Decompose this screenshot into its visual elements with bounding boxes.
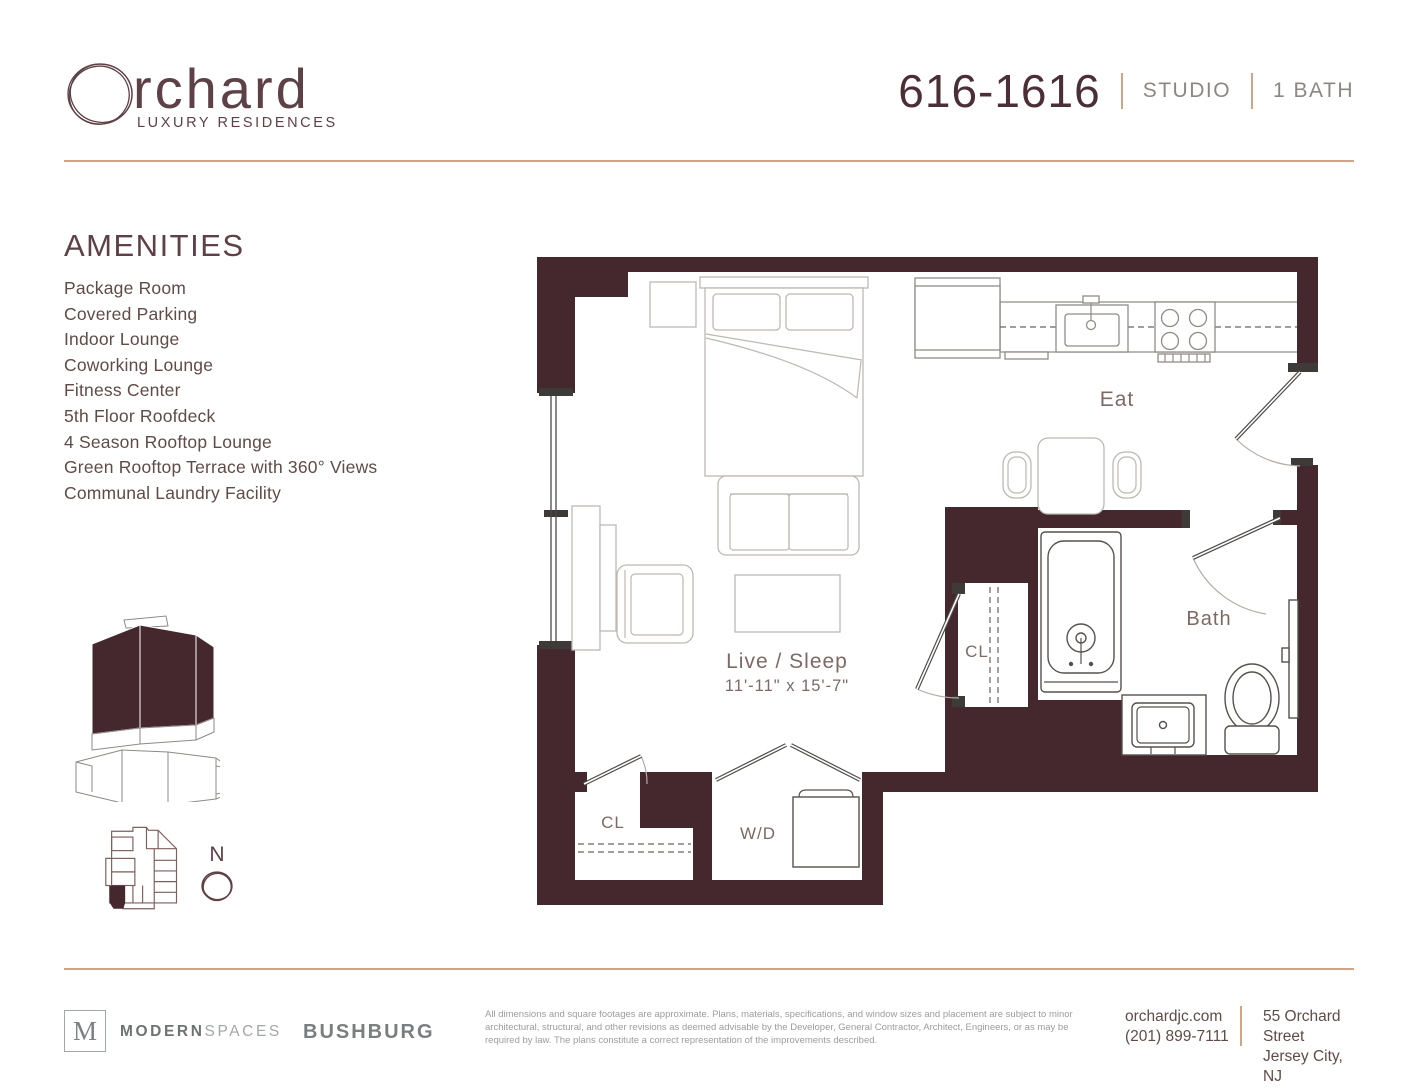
unit-header: 616-1616 STUDIO 1 BATH	[898, 64, 1354, 118]
amenities-list: Package Room Covered Parking Indoor Loun…	[64, 276, 444, 506]
phone: (201) 899-7111	[1125, 1027, 1229, 1047]
kitchen-counter	[1000, 302, 1297, 359]
bathroom-door	[1193, 518, 1280, 614]
unit-layout: STUDIO	[1143, 79, 1231, 103]
amenity-item: 5th Floor Roofdeck	[64, 404, 444, 430]
brand-tagline: LUXURY RESIDENCES	[137, 115, 338, 131]
armchair	[617, 565, 693, 643]
amenities-title: AMENITIES	[64, 228, 245, 264]
closet-lower-door	[584, 756, 647, 784]
nightstand	[650, 282, 696, 327]
closet-lower-rod	[578, 844, 691, 852]
amenity-item: Indoor Lounge	[64, 327, 444, 353]
modern-spaces-bold: MODERN	[120, 1023, 205, 1040]
stove	[1155, 302, 1215, 362]
address-line1: 55 Orchard Street	[1263, 1007, 1354, 1047]
brand-wordmark: rchard	[133, 56, 310, 121]
media-console	[572, 506, 616, 650]
toilet	[1225, 664, 1279, 754]
washer-dryer-doors	[716, 745, 860, 780]
north-label: N	[209, 843, 224, 866]
website: orchardjc.com	[1125, 1007, 1229, 1027]
building-illustration	[68, 606, 220, 802]
medicine-cabinet	[1282, 600, 1298, 718]
room-label-closet-middle: CL	[965, 642, 989, 661]
bed	[700, 277, 868, 476]
coffee-table	[735, 575, 840, 632]
header-divider	[1251, 73, 1253, 109]
unit-bath: 1 BATH	[1273, 79, 1354, 103]
contact-block: orchardjc.com (201) 899-7111	[1125, 1007, 1229, 1047]
modern-spaces-light: SPACES	[205, 1023, 282, 1040]
kitchen-sink	[1056, 296, 1128, 352]
brand-o-sketch-icon	[60, 54, 140, 134]
header-divider	[1121, 73, 1123, 109]
unit-number: 616-1616	[898, 64, 1100, 118]
disclaimer-text: All dimensions and square footages are a…	[485, 1008, 1085, 1047]
key-plan	[100, 824, 192, 916]
window	[551, 396, 556, 641]
sofa	[718, 476, 859, 555]
entry-door	[1236, 372, 1300, 466]
bathtub	[1041, 532, 1121, 692]
footer-divider	[1240, 1006, 1242, 1046]
room-label-closet-lower: CL	[601, 813, 625, 832]
amenity-item: Green Rooftop Terrace with 360° Views	[64, 455, 444, 481]
amenity-item: Covered Parking	[64, 302, 444, 328]
washer-dryer-unit	[793, 790, 859, 867]
footer: M MODERNSPACES BUSHBURG All dimensions a…	[64, 1000, 1354, 1080]
kitchen-refrigerator	[915, 278, 1000, 358]
modern-spaces-logo: M	[64, 1010, 106, 1052]
bottom-rule	[64, 968, 1354, 970]
top-rule	[64, 160, 1354, 162]
amenity-item: Package Room	[64, 276, 444, 302]
dining-table	[1003, 438, 1141, 514]
modern-spaces-wordmark: MODERNSPACES	[120, 1023, 282, 1041]
room-dimensions: 11'-11" x 15'-7"	[725, 677, 849, 695]
room-label-live-sleep: Live / Sleep	[726, 650, 848, 673]
bathroom-vanity-sink	[1122, 695, 1206, 755]
floor-plan: Eat Live / Sleep 11'-11" x 15'-7" CL Bat…	[525, 248, 1337, 908]
amenity-item: Coworking Lounge	[64, 353, 444, 379]
amenity-item: Fitness Center	[64, 378, 444, 404]
room-label-eat: Eat	[1100, 388, 1135, 411]
north-arrow: N	[194, 843, 240, 909]
address-block: 55 Orchard Street Jersey City, NJ	[1263, 1007, 1354, 1087]
amenity-item: 4 Season Rooftop Lounge	[64, 430, 444, 456]
amenity-item: Communal Laundry Facility	[64, 481, 444, 507]
address-line2: Jersey City, NJ	[1263, 1047, 1354, 1087]
room-label-bath: Bath	[1186, 608, 1231, 630]
room-label-washer-dryer: W/D	[740, 824, 776, 843]
brochure-page: rchard LUXURY RESIDENCES 616-1616 STUDIO…	[0, 0, 1418, 1090]
bushburg-wordmark: BUSHBURG	[303, 1021, 435, 1044]
